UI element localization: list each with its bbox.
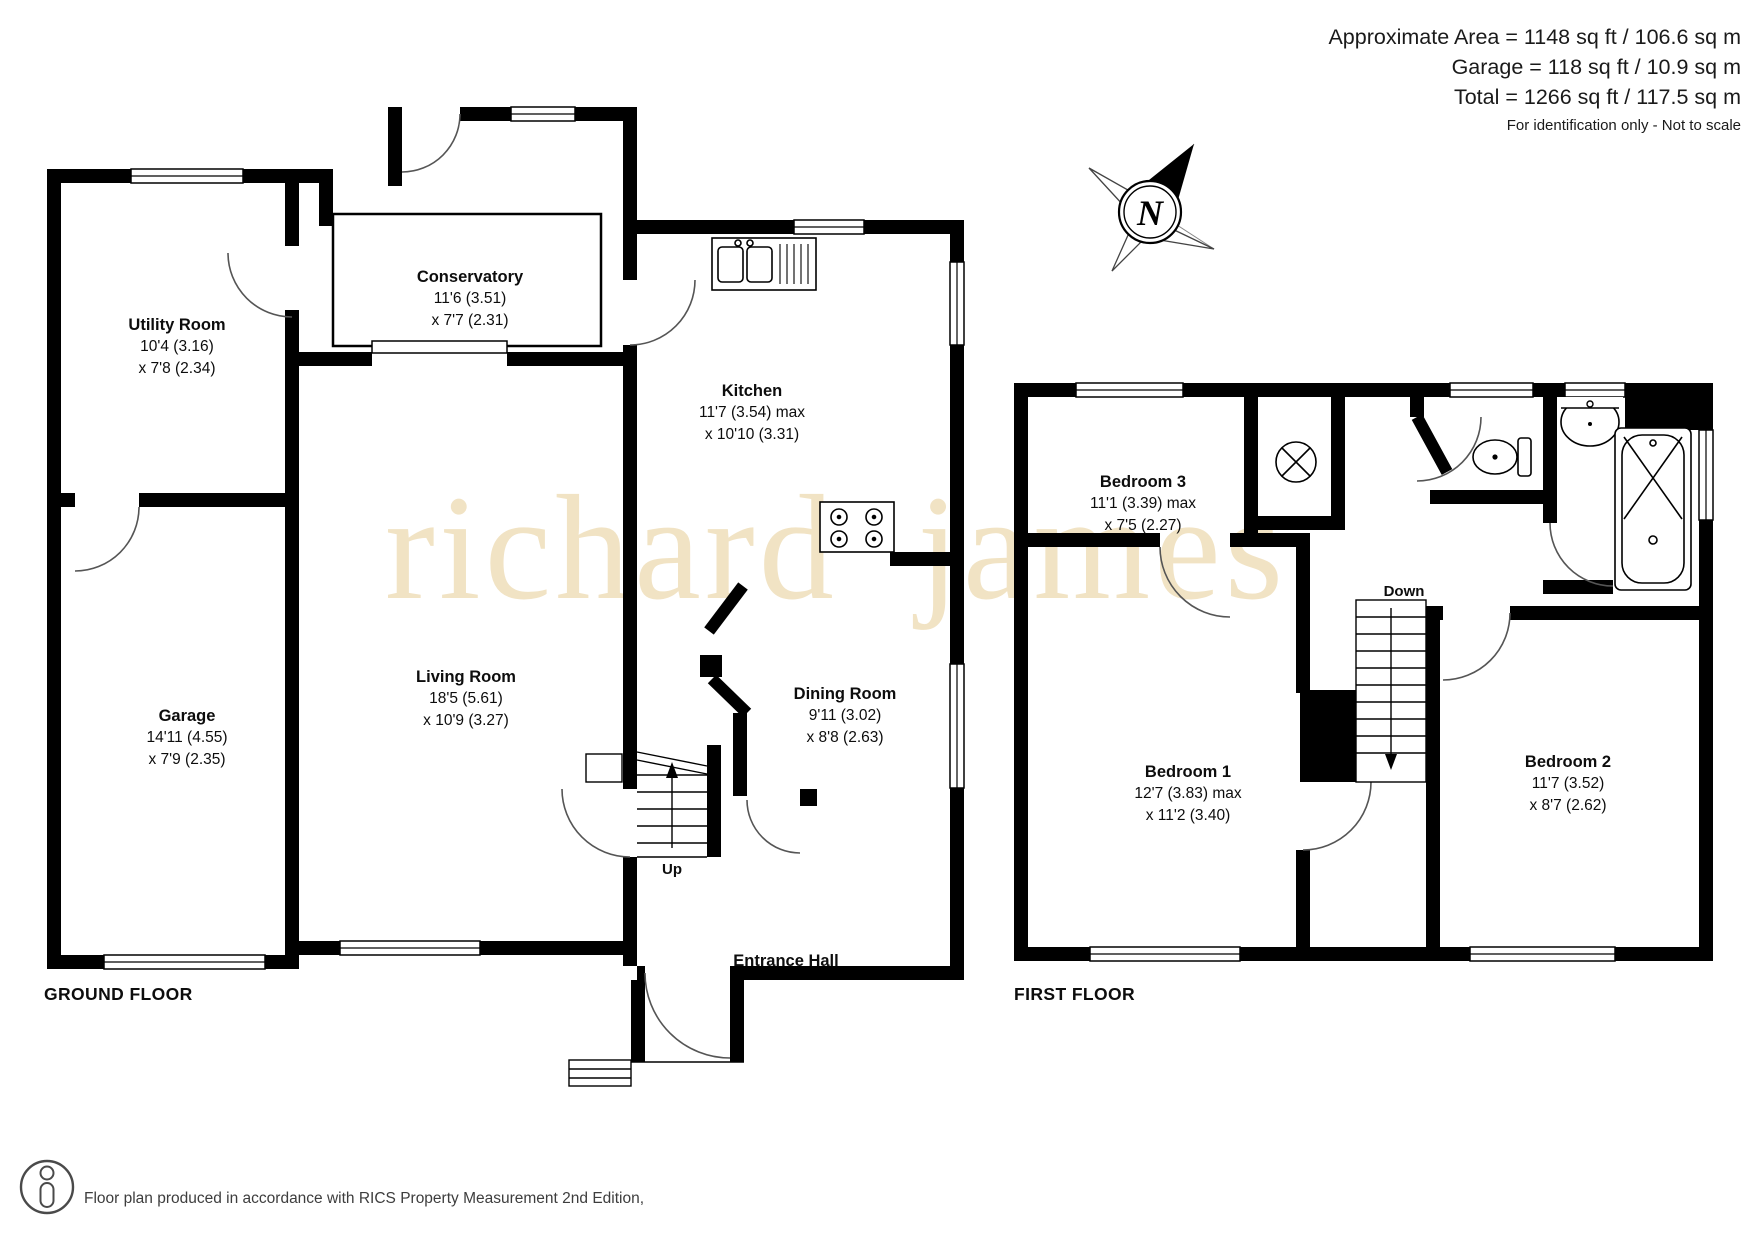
ground-floor-walls: [47, 107, 964, 1062]
basin-icon: [1557, 397, 1623, 446]
stairs-down: [1356, 600, 1426, 782]
room-dim1: 11'1 (3.39) max: [1090, 493, 1196, 515]
room-dim1: 11'7 (3.54) max: [699, 402, 805, 424]
floorplan-drawing: N: [0, 0, 1755, 1241]
bath-icon: [1615, 428, 1691, 590]
room-label-living: Living Room 18'5 (5.61) x 10'9 (3.27): [416, 666, 516, 732]
first-floor-walls: [1014, 383, 1713, 961]
room-dim2: x 7'8 (2.34): [128, 358, 225, 380]
room-dim2: x 10'9 (3.27): [416, 710, 516, 732]
room-label-utility: Utility Room 10'4 (3.16) x 7'8 (2.34): [128, 314, 225, 380]
room-name: Living Room: [416, 666, 516, 688]
footer-disclaimer: Floor plan produced in accordance with R…: [84, 1153, 786, 1241]
room-name: Conservatory: [417, 266, 523, 288]
room-label-entrance-hall: Entrance Hall: [731, 950, 841, 972]
person-logo-icon: [21, 1161, 73, 1213]
ground-floor-door-arcs: [75, 114, 800, 1058]
room-dim2: x 7'5 (2.27): [1090, 515, 1196, 537]
room-dim1: 11'7 (3.52): [1525, 773, 1611, 795]
room-name: Dining Room: [794, 683, 897, 705]
room-dim1: 11'6 (3.51): [417, 288, 523, 310]
stairs-up: [586, 752, 707, 857]
room-dim1: 9'11 (3.02): [794, 705, 897, 727]
compass-north-letter: N: [1136, 193, 1165, 233]
airing-cupboard-icon: [1276, 442, 1316, 482]
room-label-bedroom2: Bedroom 2 11'7 (3.52) x 8'7 (2.62): [1525, 751, 1611, 817]
stairs-down-label: Down: [1384, 583, 1425, 600]
porch-steps: [569, 1060, 744, 1086]
room-dim2: x 7'9 (2.35): [146, 749, 227, 771]
room-dim1: 12'7 (3.83) max: [1134, 783, 1241, 805]
room-dim2: x 8'8 (2.63): [794, 727, 897, 749]
first-floor-title: FIRST FLOOR: [1014, 984, 1135, 1005]
room-name: Garage: [146, 705, 227, 727]
identification-note: For identification only - Not to scale: [1328, 117, 1741, 134]
area-summary: Approximate Area = 1148 sq ft / 106.6 sq…: [1328, 22, 1741, 134]
room-dim2: x 7'7 (2.31): [417, 310, 523, 332]
total-area-line: Total = 1266 sq ft / 117.5 sq m: [1328, 82, 1741, 112]
room-dim1: 18'5 (5.61): [416, 688, 516, 710]
room-label-conservatory: Conservatory 11'6 (3.51) x 7'7 (2.31): [417, 266, 523, 332]
room-name: Bedroom 3: [1090, 471, 1196, 493]
room-name: Utility Room: [128, 314, 225, 336]
compass-rose: N: [1089, 144, 1214, 271]
first-floor-door-leaves: [1417, 417, 1447, 472]
room-dim1: 14'11 (4.55): [146, 727, 227, 749]
hob-icon: [820, 502, 894, 552]
approximate-area-line: Approximate Area = 1148 sq ft / 106.6 sq…: [1328, 22, 1741, 52]
room-label-bedroom1: Bedroom 1 12'7 (3.83) max x 11'2 (3.40): [1134, 761, 1241, 827]
room-label-garage: Garage 14'11 (4.55) x 7'9 (2.35): [146, 705, 227, 771]
room-label-kitchen: Kitchen 11'7 (3.54) max x 10'10 (3.31): [699, 380, 805, 446]
room-name: Kitchen: [699, 380, 805, 402]
room-dim2: x 8'7 (2.62): [1525, 795, 1611, 817]
toilet-icon: [1473, 438, 1531, 476]
ground-floor-angled-walls: [709, 586, 747, 713]
ground-floor-title: GROUND FLOOR: [44, 984, 193, 1005]
footer-line-1: Floor plan produced in accordance with R…: [84, 1190, 786, 1209]
kitchen-sink-icon: [712, 238, 816, 290]
floorplan-page: Approximate Area = 1148 sq ft / 106.6 sq…: [0, 0, 1755, 1241]
room-label-bedroom3: Bedroom 3 11'1 (3.39) max x 7'5 (2.27): [1090, 471, 1196, 537]
room-label-dining: Dining Room 9'11 (3.02) x 8'8 (2.63): [794, 683, 897, 749]
room-dim1: 10'4 (3.16): [128, 336, 225, 358]
room-name: Bedroom 1: [1134, 761, 1241, 783]
garage-area-line: Garage = 118 sq ft / 10.9 sq m: [1328, 52, 1741, 82]
stairs-up-label: Up: [662, 861, 682, 878]
room-name: Entrance Hall: [731, 950, 841, 972]
room-dim2: x 10'10 (3.31): [699, 424, 805, 446]
room-dim2: x 11'2 (3.40): [1134, 805, 1241, 827]
room-name: Bedroom 2: [1525, 751, 1611, 773]
